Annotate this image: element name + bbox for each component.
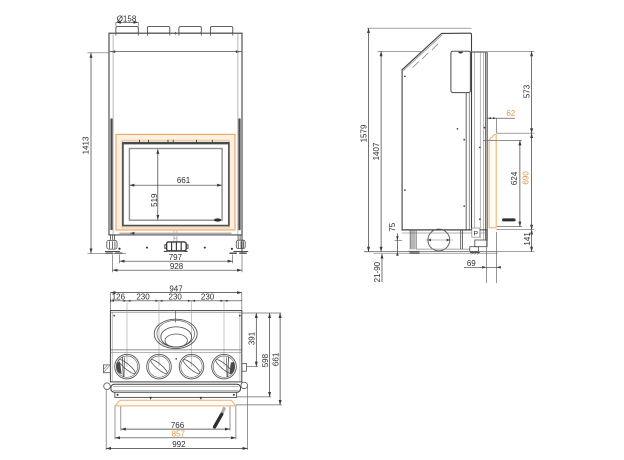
svg-text:598: 598: [261, 353, 270, 367]
svg-text:75: 75: [388, 222, 397, 231]
svg-text:519: 519: [150, 193, 159, 207]
svg-text:1407: 1407: [372, 142, 381, 160]
svg-text:Ø158: Ø158: [117, 14, 137, 23]
svg-text:69: 69: [467, 259, 476, 268]
svg-text:P: P: [474, 230, 479, 237]
svg-text:573: 573: [523, 84, 532, 98]
svg-text:141: 141: [523, 232, 532, 246]
svg-text:62: 62: [506, 109, 515, 118]
svg-text:857: 857: [172, 430, 186, 439]
svg-text:391: 391: [247, 331, 256, 345]
svg-text:230: 230: [136, 293, 150, 302]
svg-text:21-90: 21-90: [373, 261, 382, 282]
svg-text:766: 766: [171, 421, 185, 430]
svg-text:230: 230: [201, 293, 215, 302]
svg-text:661: 661: [271, 352, 280, 366]
svg-text:1413: 1413: [81, 136, 90, 154]
svg-text:797: 797: [169, 253, 183, 262]
svg-text:126: 126: [112, 293, 126, 302]
svg-text:992: 992: [172, 440, 186, 449]
svg-text:661: 661: [177, 176, 191, 185]
svg-text:690: 690: [521, 171, 530, 185]
svg-text:230: 230: [169, 293, 183, 302]
svg-text:1579: 1579: [360, 124, 369, 142]
svg-text:624: 624: [510, 171, 519, 185]
svg-text:928: 928: [170, 262, 184, 271]
